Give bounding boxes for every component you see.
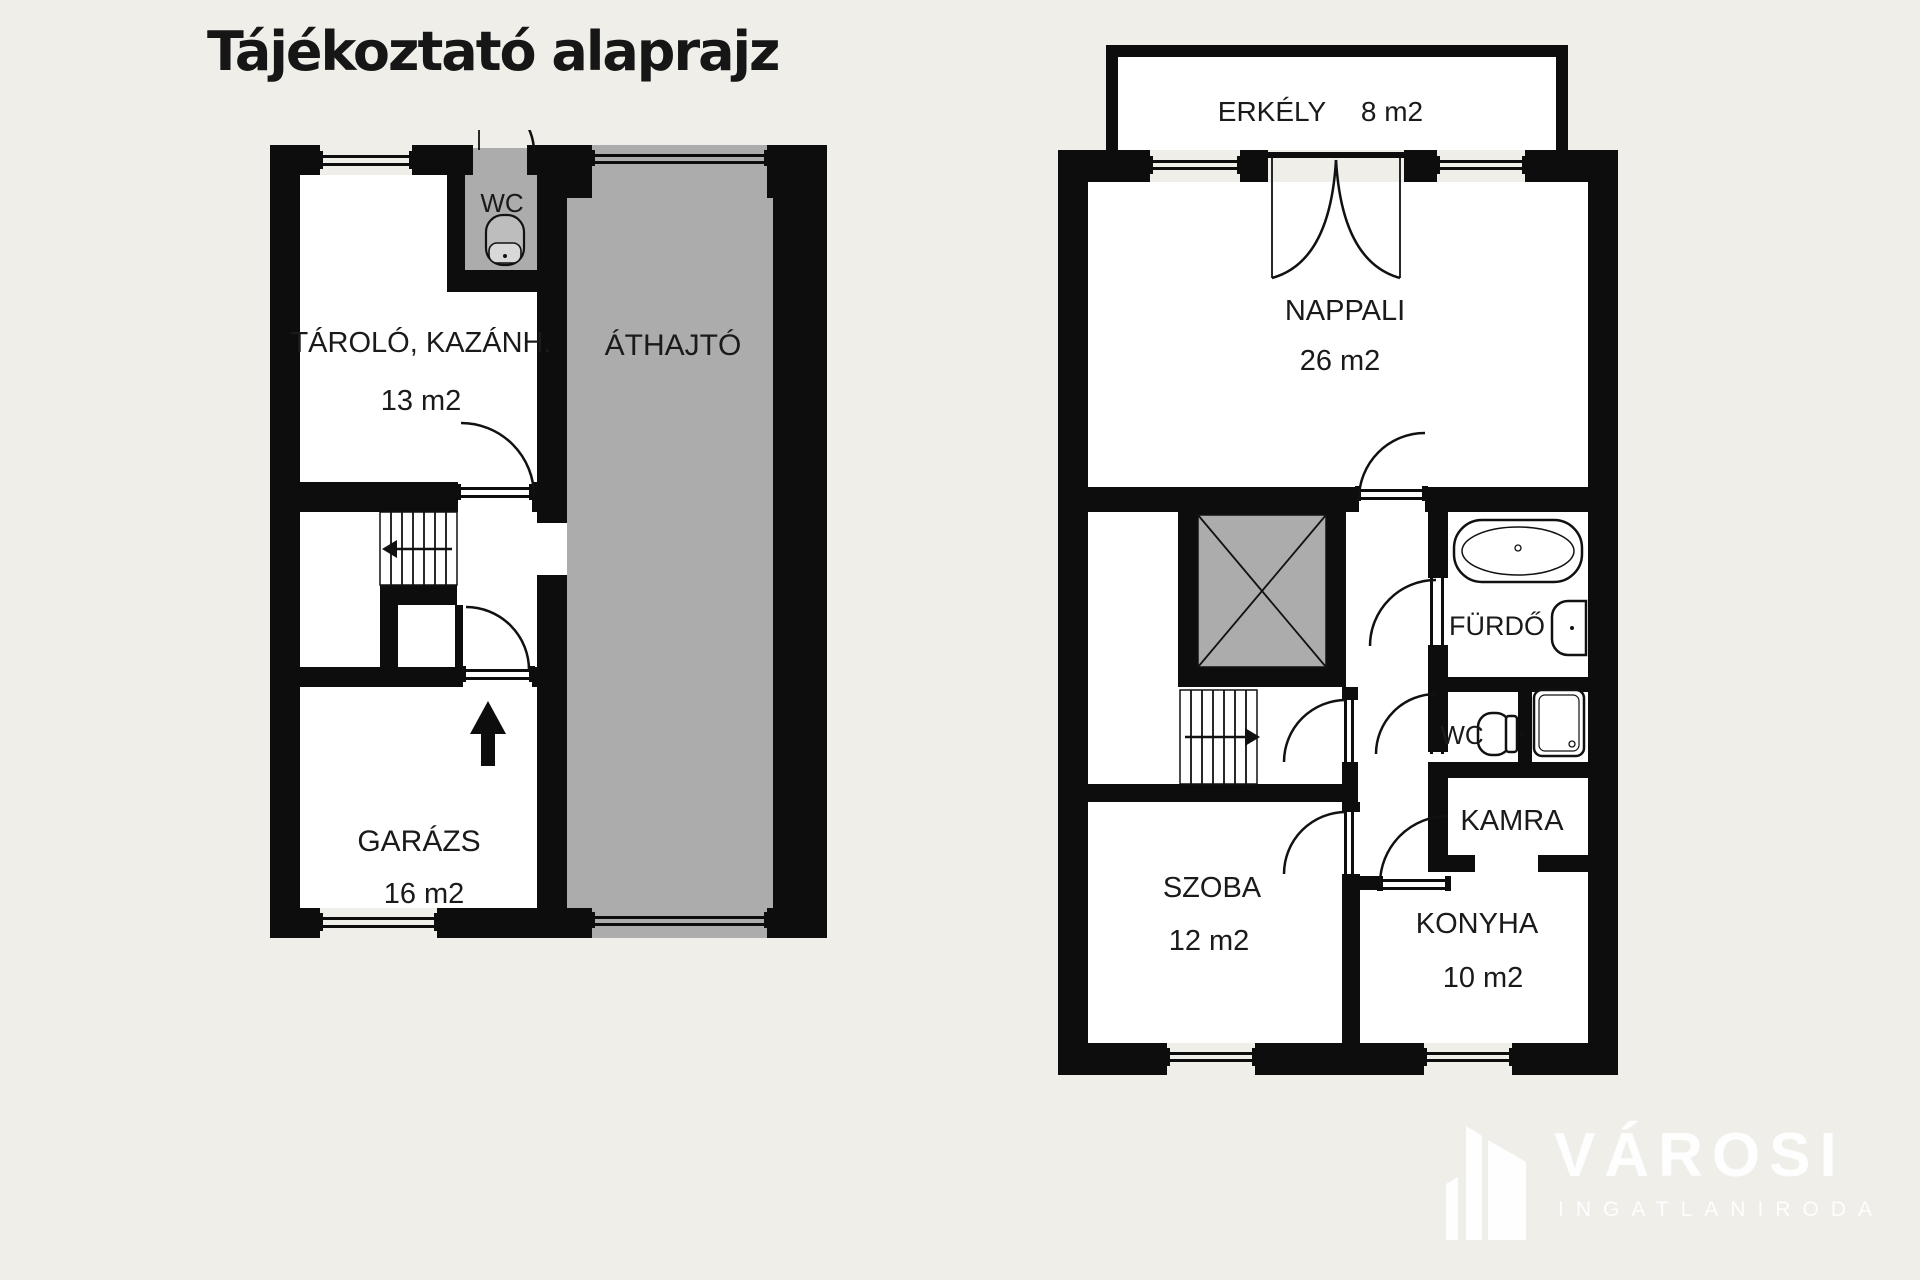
floorplan-page: Tájékoztató alaprajz [0,0,1920,1280]
room-label-athajto: ÁTHAJTÓ [605,329,742,362]
window-nappali-left [1147,156,1243,174]
room-erkely [1106,45,1568,150]
room-label-konyha: KONYHA [1416,908,1539,940]
window-szoba [1164,1048,1258,1066]
room-label-nappali: NAPPALI [1285,295,1405,327]
shower-icon [1534,690,1584,756]
window-garazs [317,913,440,931]
window-tarolo [317,151,415,169]
room-label-garazs: GARÁZS [357,825,480,858]
room-label-wc-upper: WC [1440,720,1483,750]
room-area-nappali: 26 m2 [1300,345,1381,377]
agency-watermark: VÁROSI INGATLANIRODA [1442,1112,1902,1252]
stairs-upper-icon [1180,690,1260,784]
room-athajto-floor [567,145,775,938]
bathtub-icon [1454,520,1582,582]
washbasin-icon [1552,601,1586,655]
watermark-brand: VÁROSI [1554,1120,1846,1191]
room-label-furdo: FÜRDŐ [1449,610,1545,641]
window-konyha [1421,1048,1515,1066]
room-label-wc-gf: WC [480,188,523,218]
room-area-erkely: 8 m2 [1361,96,1423,127]
toilet-icon [486,215,524,265]
room-label-erkely: ERKÉLY [1218,96,1327,127]
room-area-konyha: 10 m2 [1443,962,1524,994]
window-nappali-right [1434,156,1528,174]
stairs-icon [380,512,457,585]
varosi-logo-icon [1442,1116,1542,1246]
watermark-subtitle: INGATLANIRODA [1558,1198,1884,1222]
door-athajto-side [537,520,567,578]
shaft-icon [1198,515,1326,667]
ground-floor-plan: WC TÁROLÓ, KAZÁNH. 13 m2 ÁTHAJTÓ GARÁZS … [250,130,850,950]
toilet-upper-icon [1478,713,1524,755]
wc-doorway-floor [473,148,527,177]
upper-floor-plan: ERKÉLY 8 m2 NAPPALI 26 m2 FÜRDŐ WC KAMRA… [1040,35,1640,1095]
room-label-szoba: SZOBA [1163,872,1262,904]
room-label-kamra: KAMRA [1460,805,1564,837]
room-area-garazs: 16 m2 [384,878,465,910]
room-area-szoba: 12 m2 [1169,925,1250,957]
room-area-tarolo: 13 m2 [381,385,462,417]
room-label-tarolo: TÁROLÓ, KAZÁNH. [290,326,551,359]
page-title: Tájékoztató alaprajz [207,20,778,83]
